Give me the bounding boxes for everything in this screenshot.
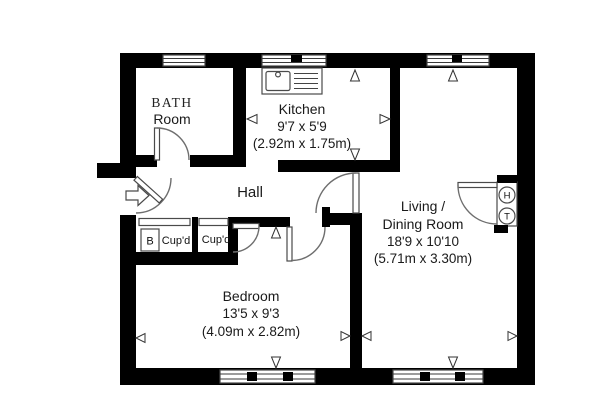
cylinder-t-label: T [504,212,510,223]
living-room-bottom-window [393,370,483,383]
bedroom-size-imperial: 13'5 x 9'3 [223,306,280,321]
bedroom-label: Bedroom 13'5 x 9'3 (4.09m x 2.82m) [202,288,300,339]
hall-label: Hall [237,184,263,201]
living-name-line2: Dining Room [383,216,464,232]
living-dining-label: Living / Dining Room 18'9 x 10'10 (5.71m… [374,198,472,266]
bathroom-window [163,55,205,66]
bedroom-size-metric: (4.09m x 2.82m) [202,324,300,339]
cupboard-2-label: Cup'd [202,234,230,246]
bathroom-label: BATH Room [151,95,192,127]
boiler-label: B [146,236,153,248]
living-size-imperial: 18'9 x 10'10 [387,234,459,249]
kitchen-label: Kitchen 9'7 x 5'9 (2.92m x 1.75m) [253,101,351,151]
floor-plan-drawing: B Cup'd Cup'd H T [0,0,600,415]
living-size-metric: (5.71m x 3.30m) [374,251,472,266]
bedroom-door [287,227,325,261]
living-name-line1: Living / [401,198,445,214]
bathroom-door [155,128,190,160]
cylinder-cupboard: H T [458,175,517,233]
boiler-box: B [141,229,159,251]
cupboard-fronts [139,219,228,226]
bedroom-name: Bedroom [223,288,280,304]
kitchen-window [262,55,326,66]
living-room-top-window [427,55,489,66]
floor-plan: B Cup'd Cup'd H T [0,0,600,415]
bathroom-label-line1: BATH [151,95,192,110]
kitchen-size-metric: (2.92m x 1.75m) [253,136,351,151]
bedroom-window [220,370,315,383]
bathroom-label-line2: Room [153,111,190,127]
sink-icon [262,68,322,94]
kitchen-size-imperial: 9'7 x 5'9 [277,119,326,134]
cylinder-h-label: H [504,191,511,202]
cupboard-1-label: Cup'd [162,235,190,247]
kitchen-name: Kitchen [279,101,326,117]
